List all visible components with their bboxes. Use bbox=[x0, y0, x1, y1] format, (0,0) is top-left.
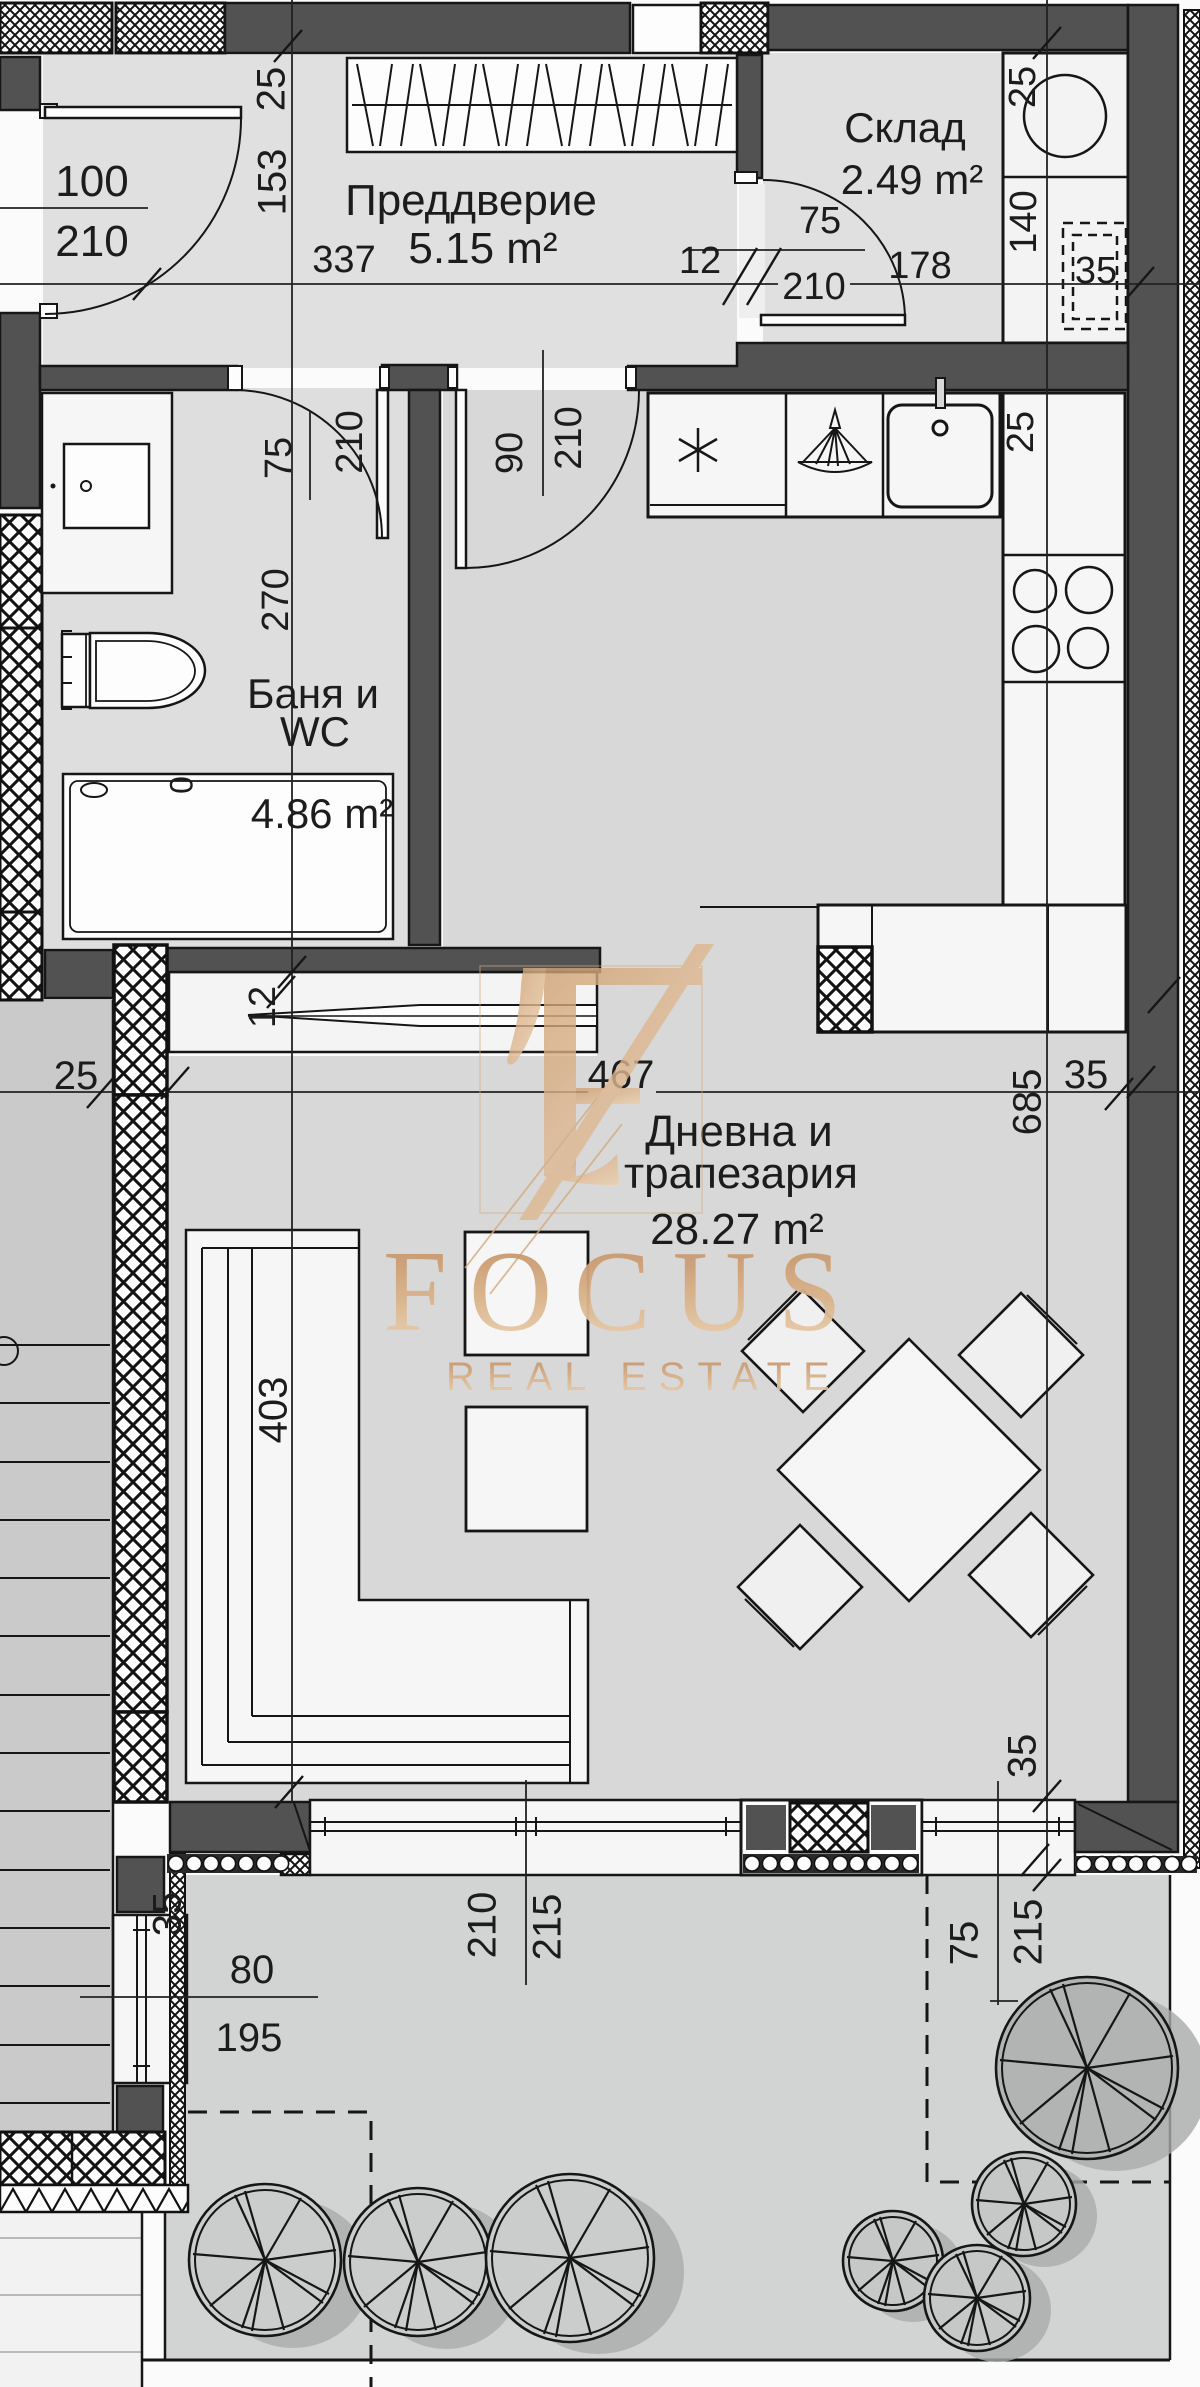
svg-text:337: 337 bbox=[312, 239, 375, 281]
svg-text:25: 25 bbox=[250, 67, 294, 112]
svg-text:75: 75 bbox=[258, 437, 300, 479]
svg-text:35: 35 bbox=[1064, 1053, 1109, 1097]
svg-text:0: 0 bbox=[163, 776, 199, 794]
svg-text:35: 35 bbox=[1001, 1734, 1045, 1779]
svg-text:685: 685 bbox=[1006, 1069, 1050, 1136]
svg-text:REAL ESTATE: REAL ESTATE bbox=[446, 1355, 842, 1399]
svg-text:35: 35 bbox=[146, 1892, 190, 1937]
svg-text:4.86 m²: 4.86 m² bbox=[251, 790, 393, 837]
svg-text:403: 403 bbox=[252, 1377, 296, 1444]
svg-text:35: 35 bbox=[1075, 250, 1117, 292]
svg-text:210: 210 bbox=[55, 217, 128, 266]
svg-text:25: 25 bbox=[1000, 411, 1042, 453]
svg-text:75: 75 bbox=[943, 1921, 987, 1966]
svg-text:WC: WC bbox=[280, 708, 350, 755]
svg-text:25: 25 bbox=[1002, 66, 1044, 108]
svg-text:210: 210 bbox=[782, 266, 845, 308]
svg-text:5.15 m²: 5.15 m² bbox=[408, 224, 557, 273]
svg-text:90: 90 bbox=[489, 432, 531, 474]
svg-text:FOCUS: FOCUS bbox=[383, 1228, 864, 1355]
svg-text:140: 140 bbox=[1003, 190, 1045, 253]
svg-text:195: 195 bbox=[216, 2016, 283, 2060]
svg-text:270: 270 bbox=[255, 568, 297, 631]
svg-text:215: 215 bbox=[1007, 1899, 1051, 1966]
svg-text:Преддверие: Преддверие bbox=[345, 176, 597, 225]
svg-text:Склад: Склад bbox=[844, 104, 966, 151]
svg-text:2.49 m²: 2.49 m² bbox=[841, 156, 983, 203]
svg-text:12: 12 bbox=[242, 986, 284, 1028]
svg-text:25: 25 bbox=[54, 1054, 99, 1098]
svg-text:12: 12 bbox=[679, 240, 721, 282]
svg-text:75: 75 bbox=[799, 200, 841, 242]
svg-text:178: 178 bbox=[888, 245, 951, 287]
svg-text:215: 215 bbox=[526, 1894, 570, 1961]
svg-text:210: 210 bbox=[329, 410, 371, 473]
svg-text:100: 100 bbox=[55, 157, 128, 206]
svg-text:80: 80 bbox=[230, 1948, 275, 1992]
svg-text:210: 210 bbox=[461, 1892, 505, 1959]
svg-text:трапезария: трапезария bbox=[624, 1149, 858, 1198]
svg-text:210: 210 bbox=[548, 406, 590, 469]
svg-text:153: 153 bbox=[251, 149, 295, 216]
